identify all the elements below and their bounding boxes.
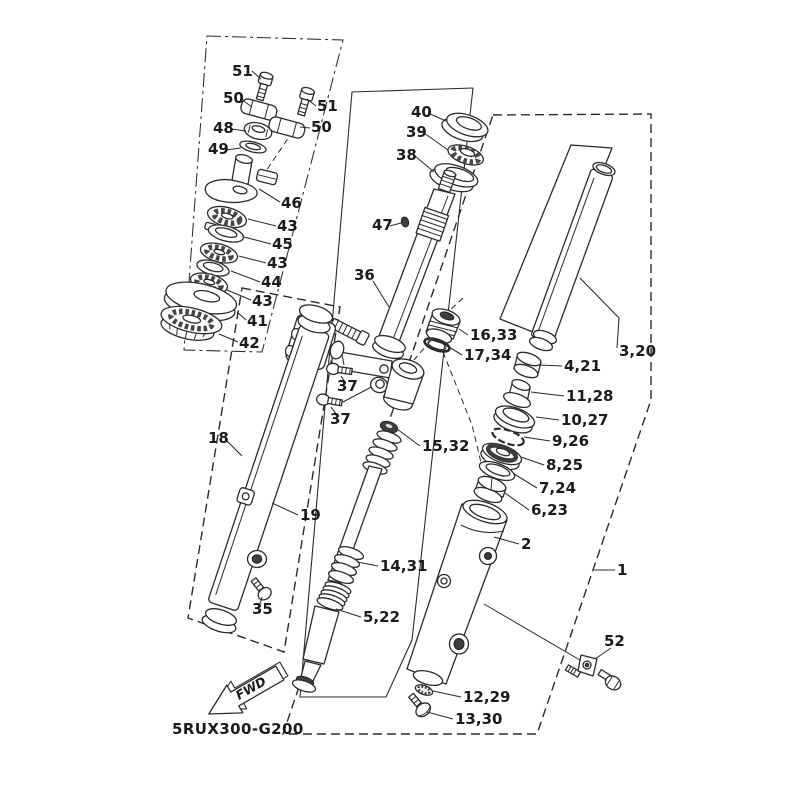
casting-body: [407, 504, 507, 684]
callout-leader: [272, 503, 298, 515]
pin-47: [400, 216, 410, 228]
front-fork-exploded-diagram: FWD 5RUX300-G200 51504849515046434543444…: [0, 0, 800, 800]
fwd-arrow: FWD: [201, 655, 292, 728]
callout-label: 43: [277, 217, 298, 235]
callout-leader: [248, 219, 276, 226]
callout-label: 19: [300, 506, 321, 524]
callout-label: 10,27: [561, 411, 608, 429]
callout-label: 52: [604, 632, 625, 650]
callout-leader: [514, 474, 537, 488]
callout-leader: [531, 392, 564, 396]
bolt-52: [595, 668, 623, 692]
callout-label: 39: [406, 123, 427, 141]
cap-bolt-group: [423, 306, 462, 354]
washer-49: [239, 139, 268, 155]
callout-leader: [336, 609, 361, 617]
callout-leader: [357, 562, 378, 566]
handle-crown-46: [205, 153, 278, 202]
bolt-35: [248, 575, 274, 602]
callout-label: 51: [317, 97, 338, 115]
cylinder-comp-5-22: [303, 606, 339, 664]
callout-leader: [415, 156, 434, 172]
seal-stack: [472, 378, 537, 506]
diagram-part-code: 5RUX300-G200: [172, 720, 304, 738]
callout-leader: [521, 457, 544, 465]
callout-label: 17,34: [464, 346, 511, 364]
callout-label: 16,33: [470, 326, 517, 344]
callout-label: 37: [330, 410, 351, 428]
collar-4-21: [512, 350, 542, 381]
flange-bolt-37-lower: [316, 393, 343, 408]
callout-leader: [540, 365, 562, 366]
callout-leader: [459, 329, 468, 335]
callout-label: 36: [354, 266, 375, 284]
outer-casting-2: [407, 496, 510, 689]
callout-label: 41: [247, 312, 268, 330]
callout-label: 2: [521, 535, 531, 553]
callout-label: 1: [617, 561, 627, 579]
tab-left-hole: [441, 578, 447, 584]
callout-label: 38: [396, 146, 417, 164]
protector-clamp-52: [565, 655, 623, 693]
callout-label: 43: [252, 292, 273, 310]
caliper-boss-hole: [485, 553, 492, 560]
callout-label: 4,21: [564, 357, 601, 375]
callout-label: 12,29: [463, 688, 510, 706]
callout-label: 14,31: [380, 557, 427, 575]
callout-leader: [239, 256, 266, 263]
callout-leader: [237, 312, 246, 320]
callout-label: 40: [411, 103, 432, 121]
callout-label: 47: [372, 216, 393, 234]
callout-label: 15,32: [422, 437, 469, 455]
callout-leader: [373, 281, 389, 307]
bolt-51-right: [295, 86, 315, 116]
callout-leader: [397, 429, 420, 446]
callout-label: 50: [311, 118, 332, 136]
callout-label: 5,22: [363, 608, 400, 626]
axle-boss-hole: [252, 555, 262, 563]
callout-leader: [219, 334, 238, 342]
callout-label: 18: [208, 429, 229, 447]
callout-label: 7,24: [539, 479, 576, 497]
callout-label: 8,25: [546, 456, 583, 474]
lower-boss-hole: [454, 639, 464, 650]
callout-label: 51: [232, 62, 253, 80]
callout-label: 46: [281, 194, 302, 212]
callout-label: 45: [272, 235, 293, 253]
callout-label: 6,23: [531, 501, 568, 519]
callout-label: 37: [337, 377, 358, 395]
clamp-hole-center: [585, 663, 589, 667]
callout-label: 13,30: [455, 710, 502, 728]
callout-leader: [505, 493, 529, 510]
callout-label: 11,28: [566, 387, 613, 405]
callout-leader: [433, 691, 461, 697]
callout-leader: [231, 271, 260, 282]
callout-leader: [244, 237, 271, 244]
callout-label: 48: [213, 119, 234, 137]
callout-leader: [427, 712, 453, 719]
callout-leader: [259, 189, 280, 202]
callout-label: 50: [223, 89, 244, 107]
tube-to-cap-line: [448, 298, 463, 312]
ring-nut-40: [439, 108, 491, 148]
inner-tube-group: [500, 145, 617, 380]
callout-leader: [449, 347, 462, 355]
steering-bearing-stack: [157, 203, 249, 347]
callout-label: 43: [267, 254, 288, 272]
callout-label: 9,26: [552, 432, 589, 450]
clamp52-mount-line: [484, 604, 585, 663]
callout-leader: [424, 133, 448, 150]
bottom-bolt-group: [405, 683, 434, 720]
exploded-parts-diagram-page: FWD 5RUX300-G200 51504849515046434543444…: [0, 0, 800, 800]
callout-label: 42: [239, 334, 260, 352]
callout-leader: [580, 278, 619, 348]
callout-leader: [524, 437, 550, 441]
callout-label: 3,20: [619, 342, 656, 360]
callout-leader: [536, 417, 559, 420]
callout-label: 44: [261, 273, 282, 291]
callout-label: 35: [252, 600, 273, 618]
callout-label: 49: [208, 140, 229, 158]
